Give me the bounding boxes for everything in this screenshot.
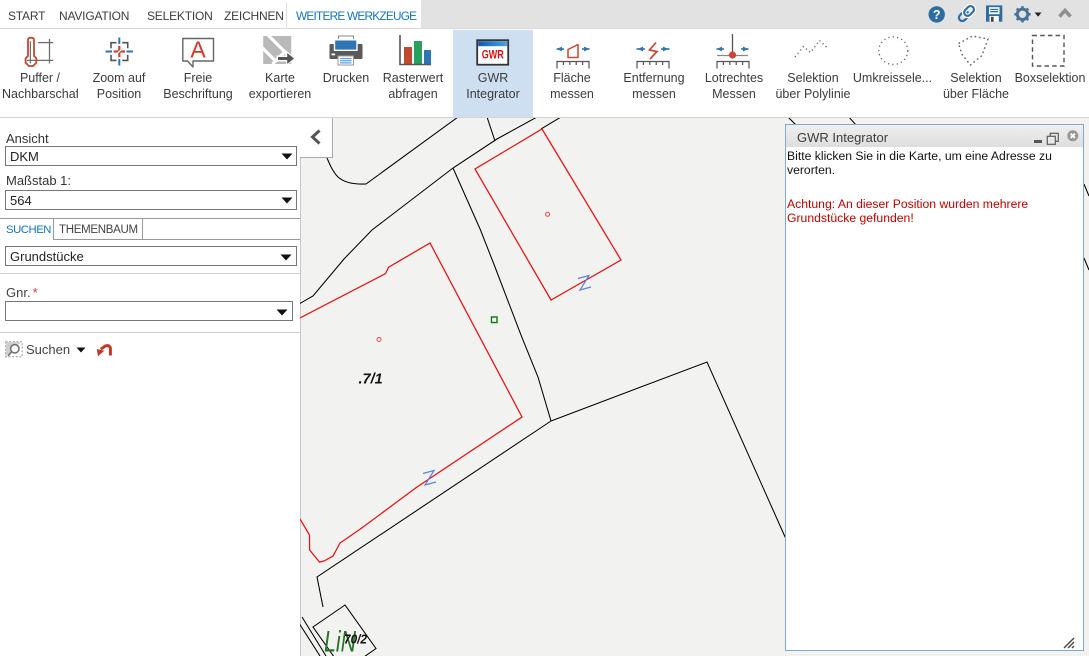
svg-text:.7/1: .7/1 <box>359 372 383 388</box>
svg-text:70/2: 70/2 <box>344 632 368 647</box>
svg-text:A: A <box>190 37 206 63</box>
svg-text:GWR: GWR <box>482 49 505 61</box>
svg-text:?: ? <box>933 8 941 22</box>
